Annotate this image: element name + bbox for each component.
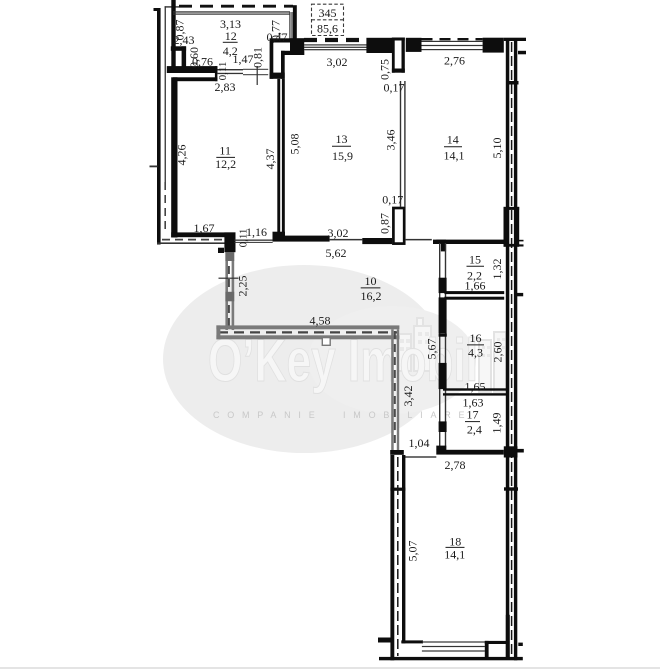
svg-text:4,37: 4,37 bbox=[263, 149, 277, 170]
svg-text:13: 13 bbox=[336, 132, 348, 146]
svg-text:1,67: 1,67 bbox=[194, 221, 215, 235]
svg-text:10: 10 bbox=[365, 274, 377, 288]
svg-text:0,47: 0,47 bbox=[267, 30, 288, 44]
svg-text:1,32: 1,32 bbox=[490, 259, 504, 280]
svg-text:0,11: 0,11 bbox=[238, 229, 250, 248]
svg-text:0,81: 0,81 bbox=[251, 47, 265, 68]
svg-text:5,67: 5,67 bbox=[425, 339, 439, 360]
svg-text:2,43: 2,43 bbox=[174, 33, 195, 47]
svg-text:14,1: 14,1 bbox=[444, 548, 465, 562]
svg-text:12: 12 bbox=[225, 29, 237, 43]
svg-text:0,87: 0,87 bbox=[378, 213, 392, 234]
svg-text:4,58: 4,58 bbox=[310, 314, 331, 328]
svg-text:0,76: 0,76 bbox=[192, 54, 213, 68]
svg-text:4,26: 4,26 bbox=[175, 145, 189, 166]
svg-text:1,66: 1,66 bbox=[465, 279, 486, 293]
svg-text:0,75: 0,75 bbox=[378, 59, 392, 80]
svg-text:3,42: 3,42 bbox=[401, 386, 415, 407]
svg-text:2,76: 2,76 bbox=[444, 54, 465, 68]
svg-text:3,02: 3,02 bbox=[327, 55, 348, 69]
svg-text:15: 15 bbox=[469, 253, 481, 267]
svg-text:2,4: 2,4 bbox=[467, 423, 482, 437]
svg-text:18: 18 bbox=[449, 534, 461, 548]
svg-text:14,1: 14,1 bbox=[444, 149, 465, 163]
svg-text:0,17: 0,17 bbox=[384, 81, 405, 95]
svg-text:2,60: 2,60 bbox=[491, 342, 505, 363]
svg-text:2,78: 2,78 bbox=[445, 458, 466, 472]
svg-text:1,49: 1,49 bbox=[490, 413, 504, 434]
svg-text:4,3: 4,3 bbox=[468, 346, 483, 360]
svg-text:17: 17 bbox=[467, 408, 479, 422]
svg-text:0,17: 0,17 bbox=[382, 193, 403, 207]
svg-text:5,10: 5,10 bbox=[490, 138, 504, 159]
svg-text:5,07: 5,07 bbox=[406, 541, 420, 562]
svg-text:1,65: 1,65 bbox=[465, 380, 486, 394]
svg-text:0,11: 0,11 bbox=[217, 62, 229, 81]
svg-text:16,2: 16,2 bbox=[361, 289, 382, 303]
svg-text:16: 16 bbox=[470, 331, 482, 345]
svg-text:11: 11 bbox=[219, 143, 231, 157]
svg-text:5,62: 5,62 bbox=[326, 246, 347, 260]
svg-text:15,9: 15,9 bbox=[332, 149, 353, 163]
svg-text:1,04: 1,04 bbox=[409, 436, 430, 450]
svg-text:85,6: 85,6 bbox=[317, 22, 338, 36]
svg-text:12,2: 12,2 bbox=[215, 157, 236, 171]
svg-text:3,02: 3,02 bbox=[328, 226, 349, 240]
svg-text:14: 14 bbox=[447, 132, 459, 146]
svg-text:5,08: 5,08 bbox=[288, 134, 302, 155]
svg-text:2,83: 2,83 bbox=[215, 80, 236, 94]
svg-text:345: 345 bbox=[319, 6, 337, 20]
svg-text:3,46: 3,46 bbox=[384, 130, 398, 151]
